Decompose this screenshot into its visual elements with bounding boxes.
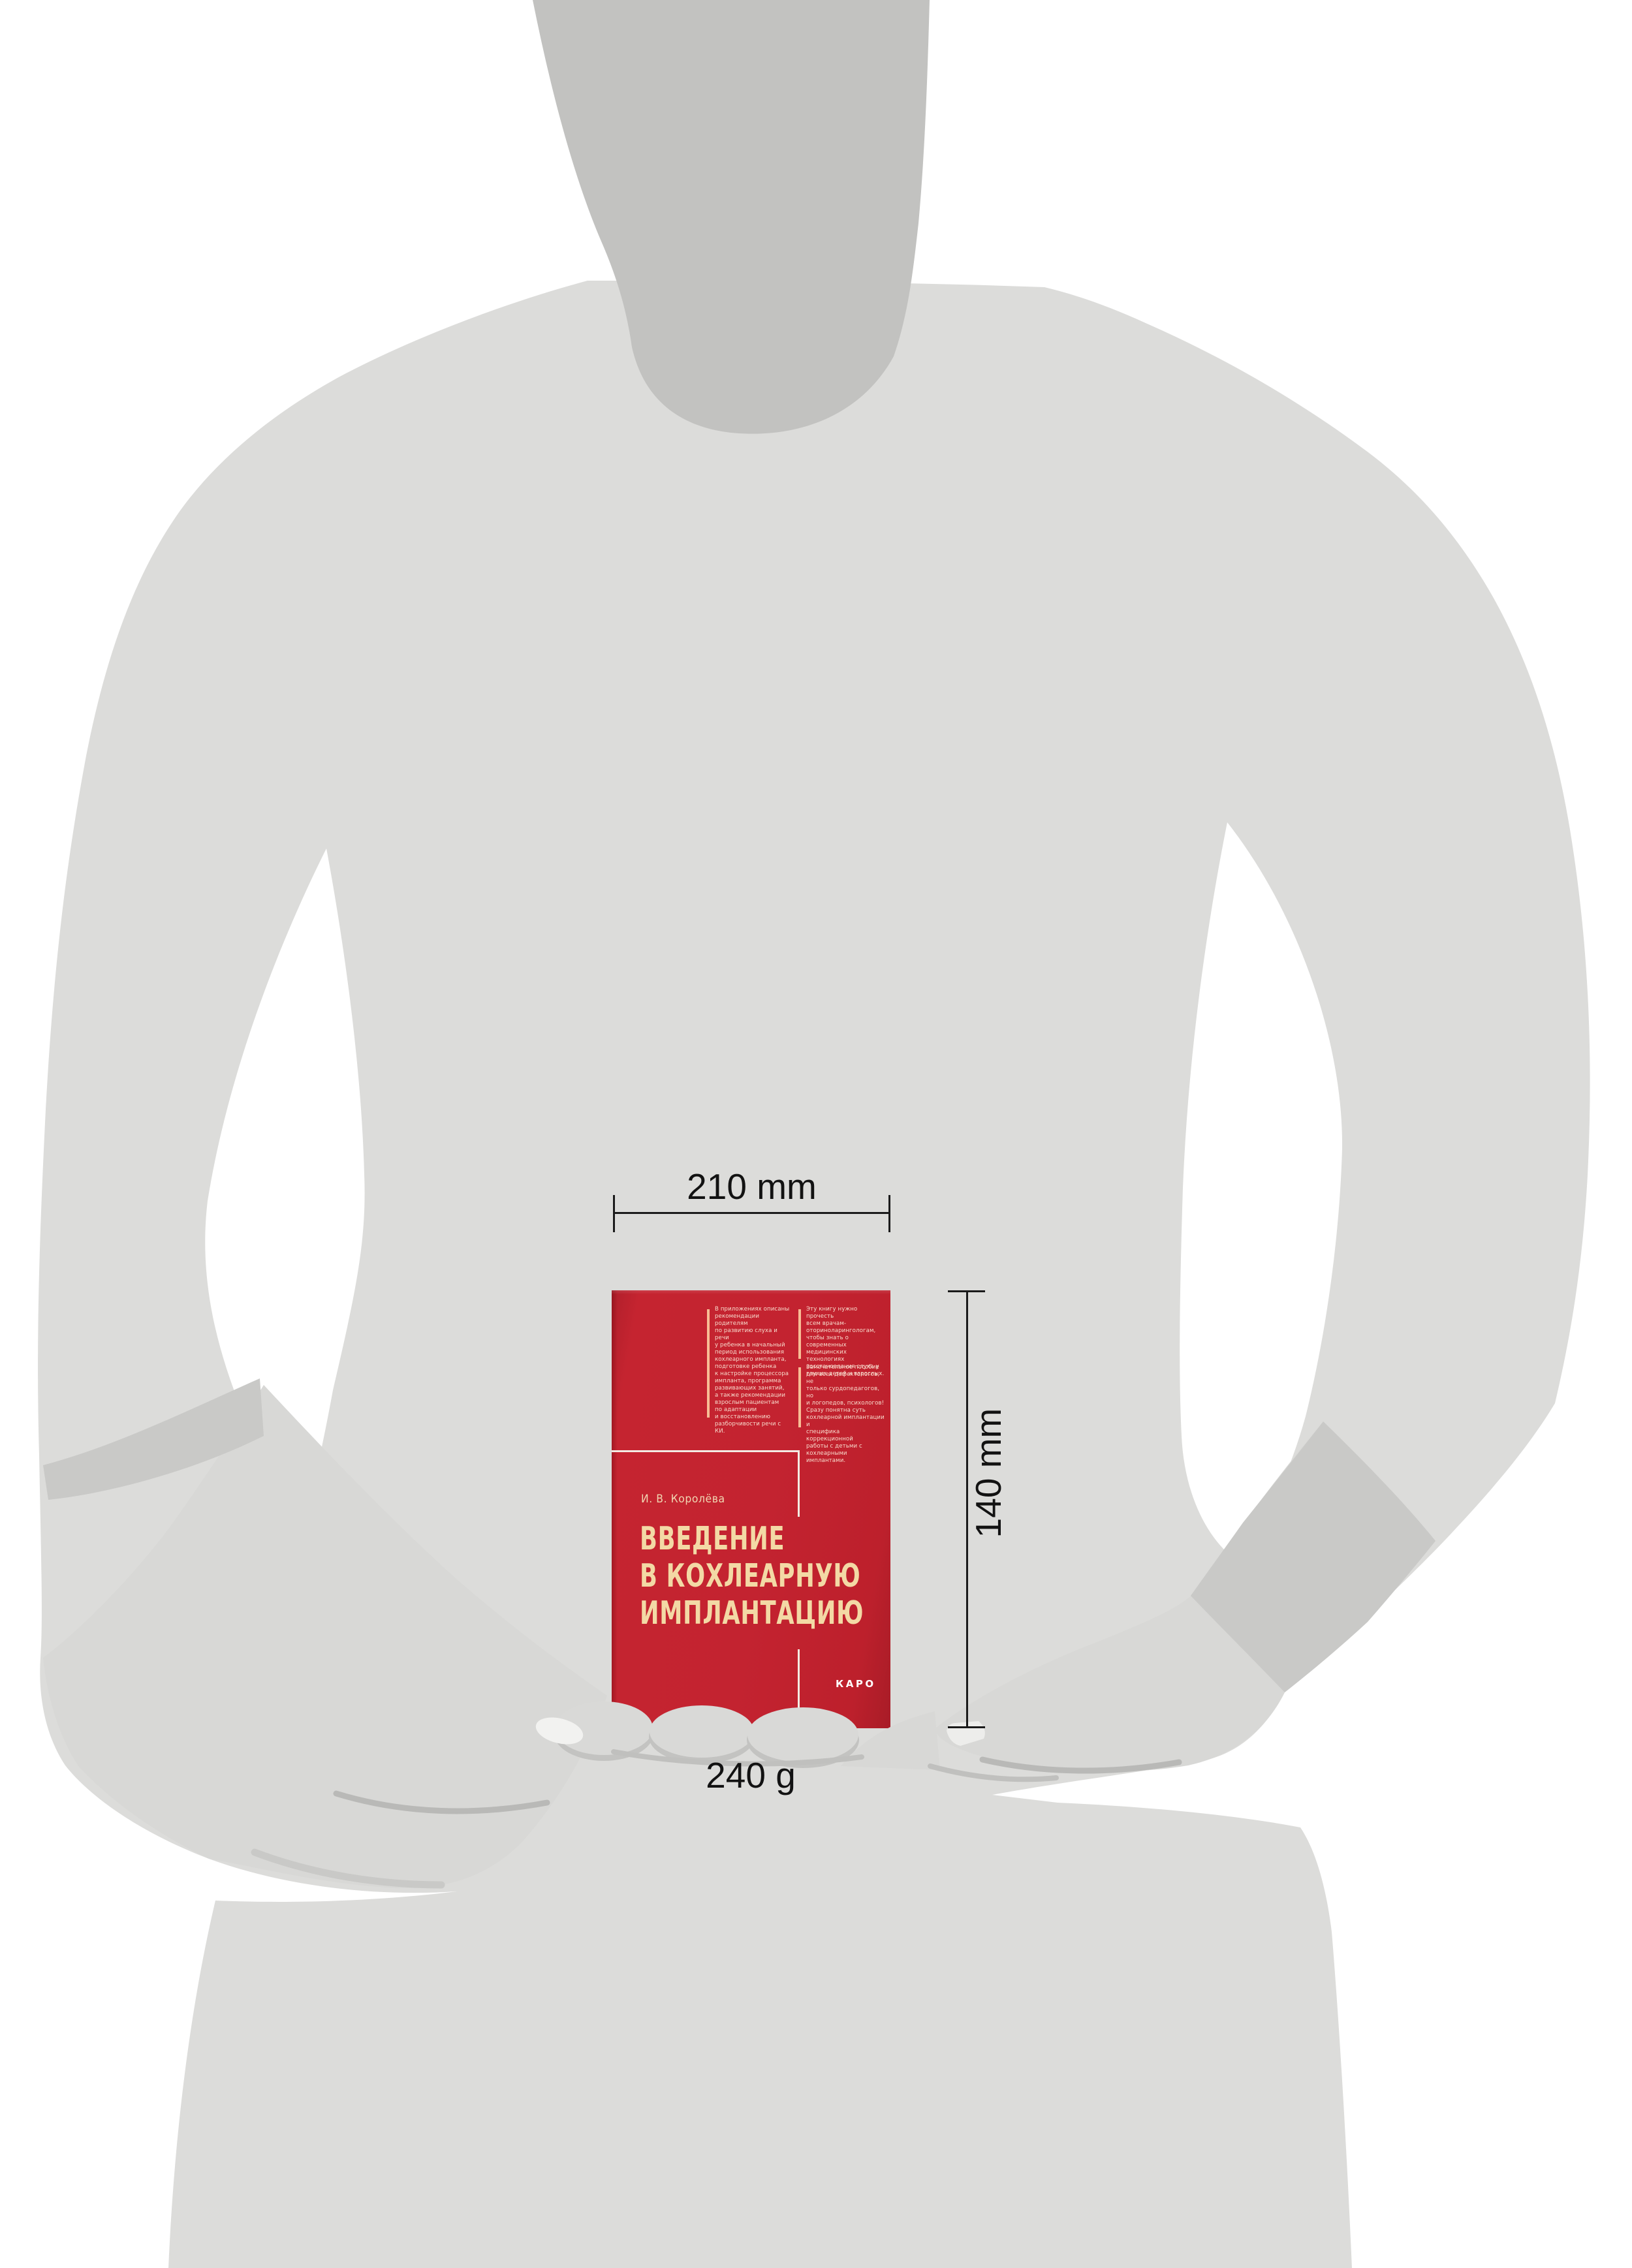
product-size-illustration: В приложениях описаны рекомендации родит… (0, 0, 1632, 2268)
finger-bump-2 (650, 1705, 754, 1758)
left-finger-crease (336, 1794, 547, 1811)
fingers-overlay (0, 0, 1632, 2268)
weight-label: 240 g (665, 1754, 837, 1796)
width-dimension-line (613, 1212, 890, 1214)
height-label: 140 mm (969, 1382, 1007, 1564)
right-finger-crease (982, 1760, 1179, 1771)
height-dimension-tick-bottom (948, 1726, 985, 1728)
width-label: 210 mm (613, 1166, 890, 1207)
height-dimension-tick-top (948, 1290, 985, 1292)
